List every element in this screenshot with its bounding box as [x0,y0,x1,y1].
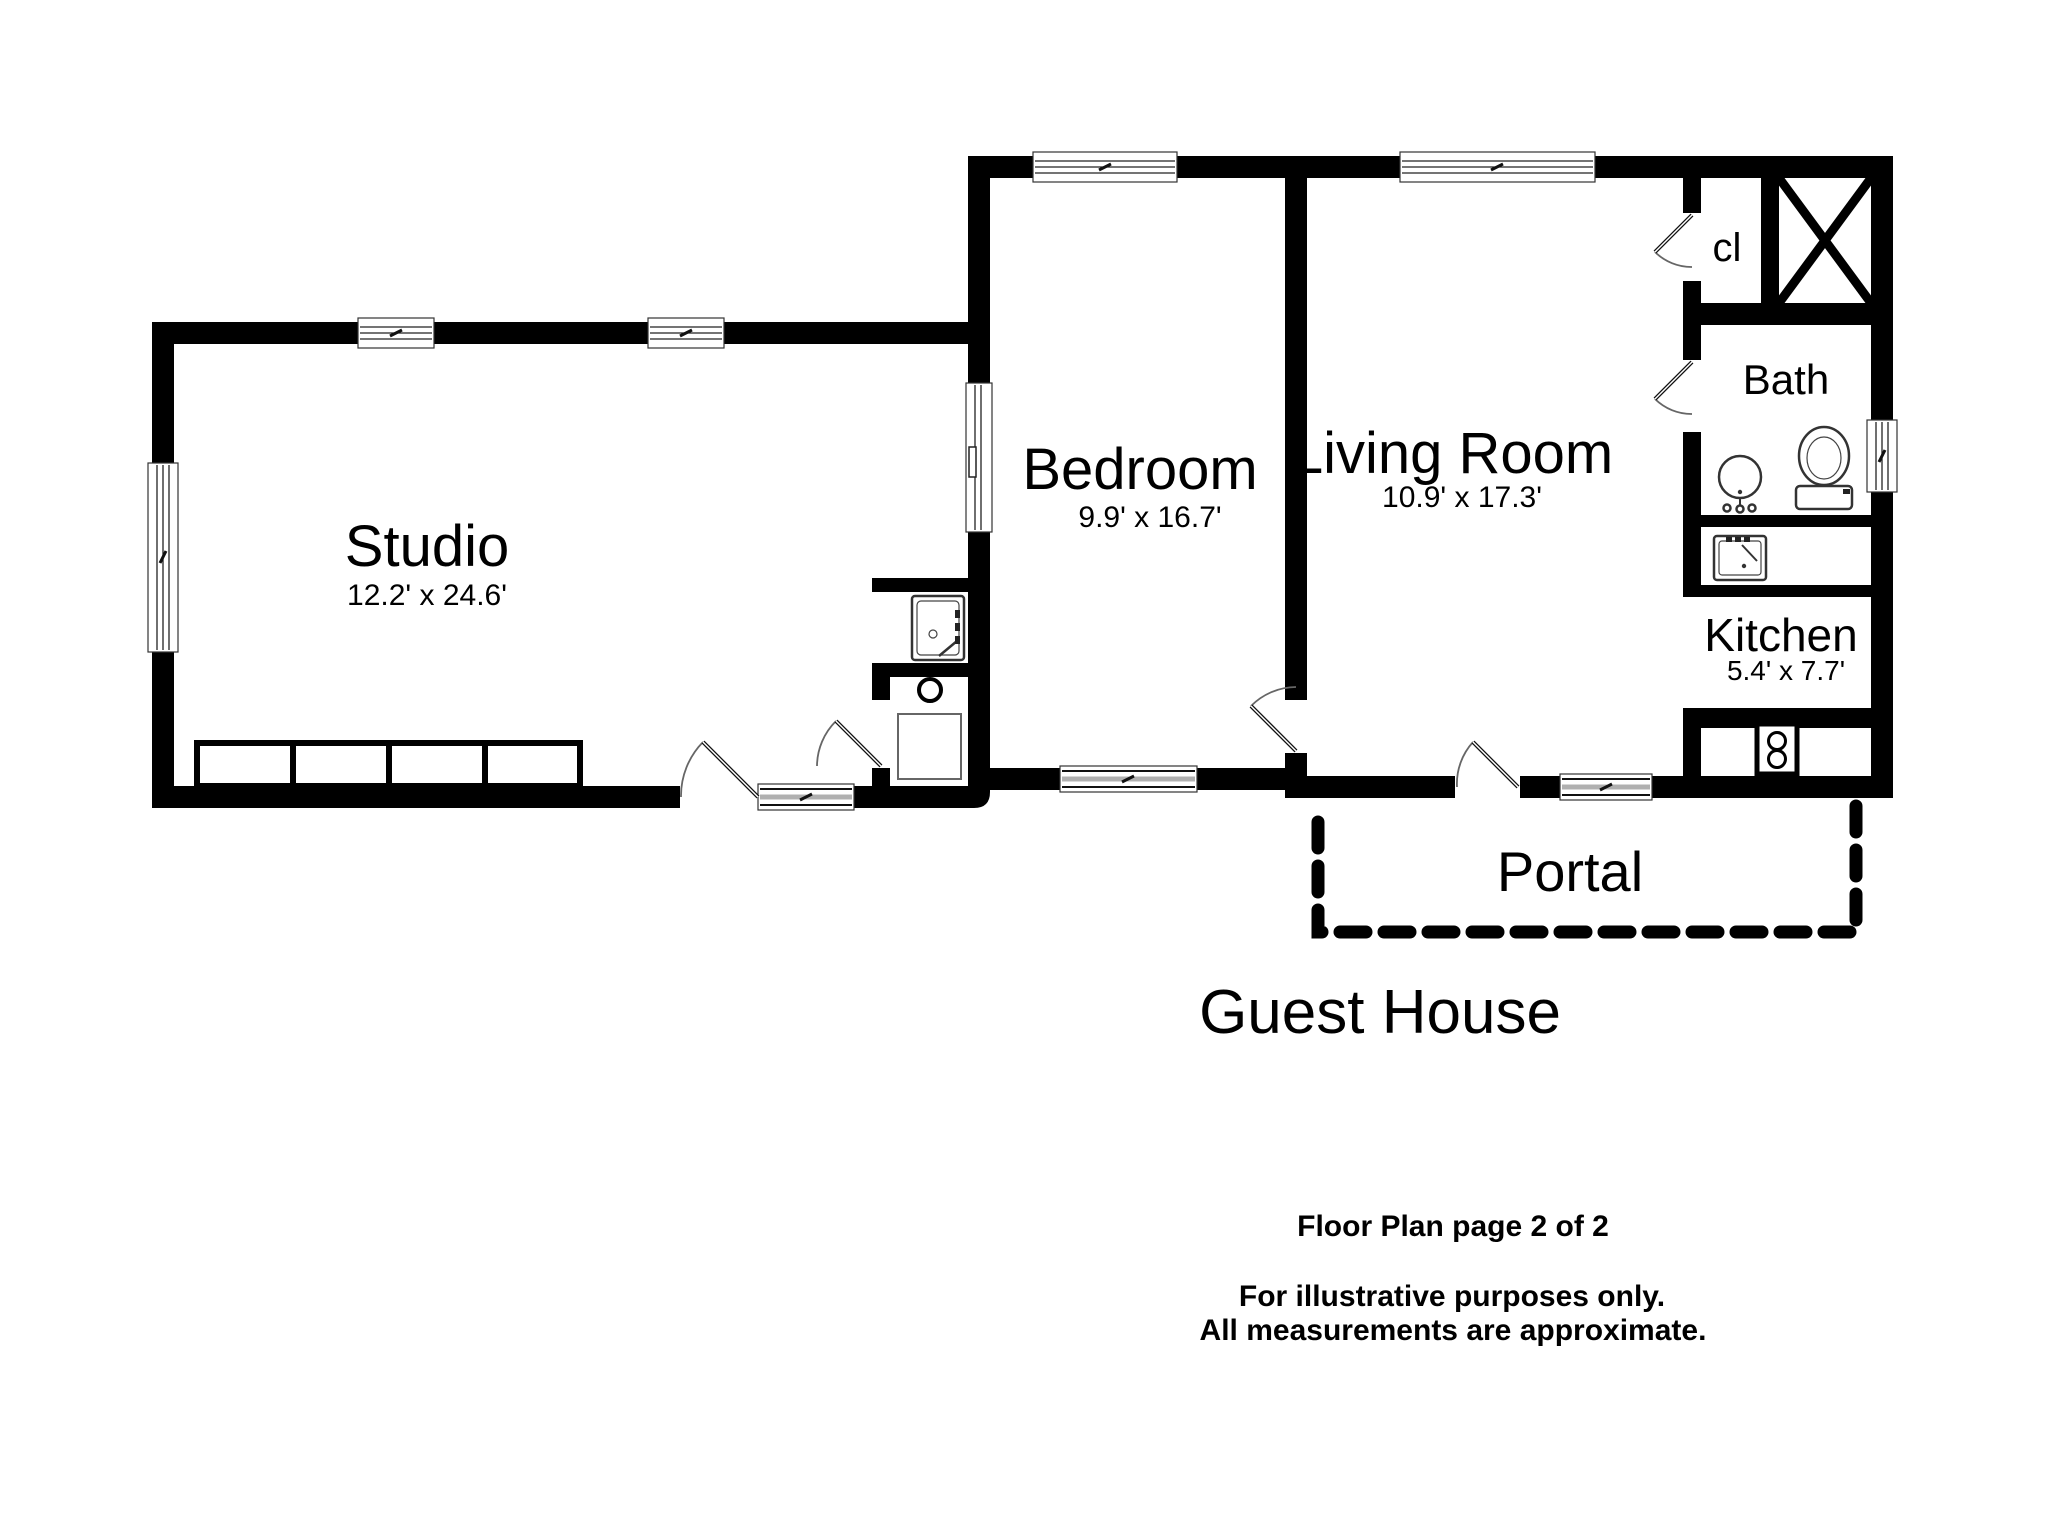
stove-icon [1757,724,1797,774]
window-icon [358,318,434,348]
studio-dims: 12.2' x 24.6' [347,579,507,612]
bedroom-dims: 9.9' x 16.7' [1078,501,1221,534]
shower-x-box-icon [1779,178,1871,303]
toilet-icon [1796,427,1852,509]
window-icon [1867,420,1897,492]
footer-disclaimer-1: For illustrative purposes only. [1239,1280,1665,1313]
page-title: Guest House [1199,978,1561,1047]
utility-toilet-icon [919,679,941,701]
door-swing-icon [1457,742,1518,787]
footer-disclaimer-2: All measurements are approximate. [1200,1314,1707,1347]
closet-label: cl [1713,226,1742,270]
living-room-dims: 10.9' x 17.3' [1382,481,1542,514]
studio-counter-icon [197,743,580,786]
door-swing-icon [681,742,758,797]
door-swing-icon [1655,362,1692,414]
window-icon [648,318,724,348]
shower-pan-icon [898,714,961,779]
sliding-window-icon [1060,766,1197,792]
window-icon [148,463,178,652]
footer-page-label: Floor Plan page 2 of 2 [1297,1210,1609,1243]
floor-plan-page: Studio 12.2' x 24.6' Bedroom 9.9' x 16.7… [0,0,2046,1536]
door-swing-icon [1655,215,1692,267]
door-swing-icon [817,721,881,766]
floor-plan-drawing: Studio 12.2' x 24.6' Bedroom 9.9' x 16.7… [0,0,2046,1536]
studio-label: Studio [345,514,509,579]
utility-sink-icon [912,596,964,660]
sliding-window-icon [758,784,854,810]
bath-sink-icon [1719,456,1761,513]
kitchen-label: Kitchen [1704,609,1857,661]
window-icon [1400,152,1595,182]
living-room-label: Living Room [1291,421,1613,486]
window-icon [1033,152,1177,182]
pocket-door-icon [966,383,992,532]
kitchen-dims: 5.4' x 7.7' [1727,655,1845,686]
kitchen-sink-icon [1714,536,1766,580]
sliding-window-icon [1560,774,1652,800]
bath-label: Bath [1743,356,1829,403]
bedroom-label: Bedroom [1022,437,1257,502]
portal-label: Portal [1497,840,1643,903]
